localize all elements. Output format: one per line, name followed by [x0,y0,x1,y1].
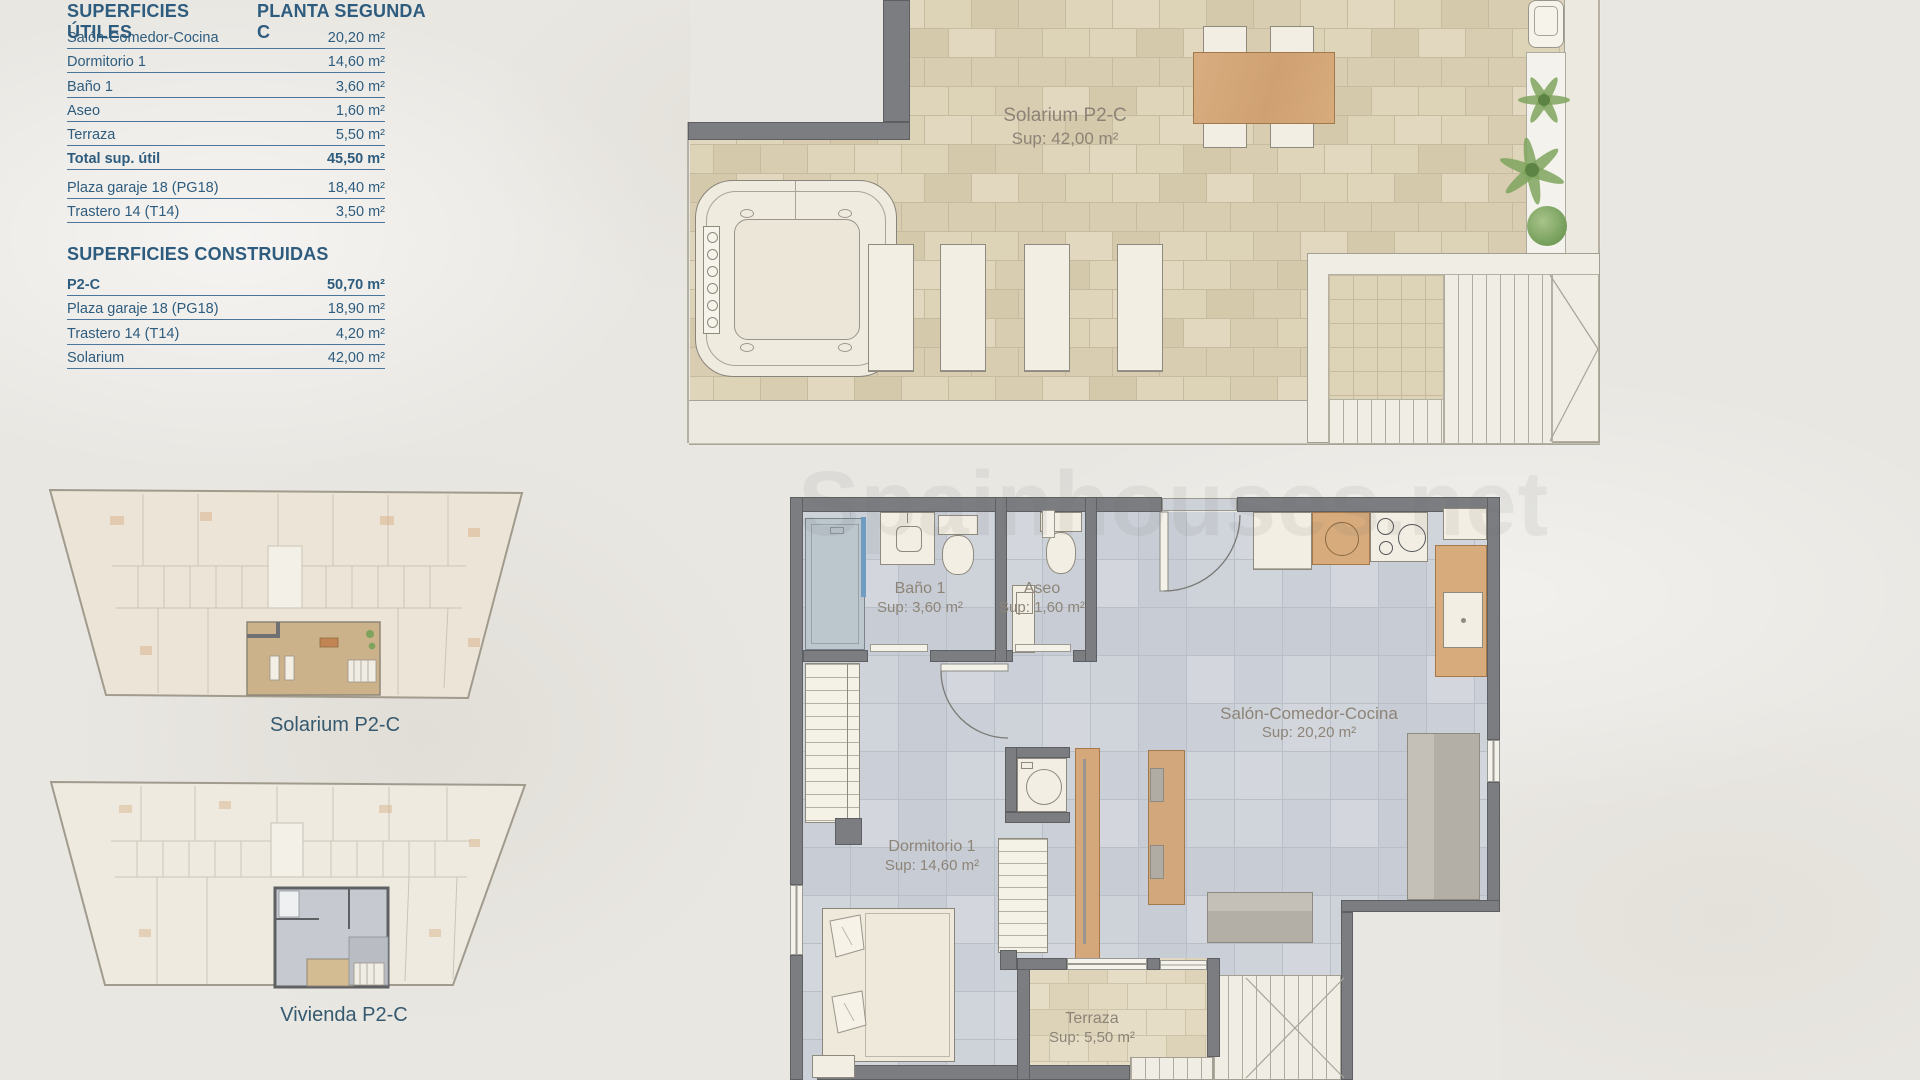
annex-table: Plaza garaje 18 (PG18) 18,40 m² Trastero… [67,175,385,223]
row-label: Plaza garaje 18 (PG18) [67,301,219,317]
row-label: Baño 1 [67,79,113,95]
row-value: 42,00 m² [328,350,385,366]
table-row: Solarium 42,00 m² [67,345,385,369]
row-value: 50,70 m² [327,277,385,293]
row-label: Terraza [67,127,115,143]
row-value: 5,50 m² [336,127,385,143]
key-plan-solarium [48,488,526,703]
table-row: Dormitorio 1 14,60 m² [67,49,385,73]
row-value: 3,50 m² [336,204,385,220]
construidas-table: P2-C 50,70 m² Plaza garaje 18 (PG18) 18,… [67,272,385,369]
row-label: Trastero 14 (T14) [67,326,179,342]
table-row: Aseo 1,60 m² [67,98,385,122]
solarium-linework [650,0,1600,443]
row-value: 20,20 m² [328,30,385,46]
row-label: Aseo [67,103,100,119]
floorplan-page: SUPERFICIES ÚTILES PLANTA SEGUNDA C Saló… [0,0,1920,1080]
room-area: Sup: 42,00 m² [1003,128,1127,149]
table-row: Trastero 14 (T14) 3,50 m² [67,199,385,223]
row-label: Trastero 14 (T14) [67,204,179,220]
room-label-banho: Baño 1 Sup: 3,60 m² [877,579,963,618]
table-row: Trastero 14 (T14) 4,20 m² [67,320,385,344]
table-row: Baño 1 3,60 m² [67,73,385,97]
room-name: Dormitorio 1 [885,837,979,857]
room-area: Sup: 14,60 m² [885,857,979,876]
key-plan-vivienda-label: Vivienda P2-C [49,1004,583,1027]
room-label-salon: Salón-Comedor-Cocina Sup: 20,20 m² [1220,703,1398,743]
row-label: Salón-Comedor-Cocina [67,30,219,46]
table-row: P2-C 50,70 m² [67,272,385,296]
row-value: 4,20 m² [336,326,385,342]
solarium-plan: Solarium P2-C Sup: 42,00 m² [650,0,1600,443]
room-area: Sup: 5,50 m² [1049,1029,1135,1048]
row-value: 18,90 m² [328,301,385,317]
construidas-title: SUPERFICIES CONSTRUIDAS [67,244,329,265]
table-row: Salón-Comedor-Cocina 20,20 m² [67,25,385,49]
row-value: 14,60 m² [328,54,385,70]
room-name: Aseo [999,579,1085,599]
room-name: Salón-Comedor-Cocina [1220,703,1398,724]
row-value: 18,40 m² [328,180,385,196]
key-plan-vivienda [49,779,527,989]
room-label-aseo: Aseo Sup: 1,60 m² [999,579,1085,618]
row-value: 1,60 m² [336,103,385,119]
room-name: Baño 1 [877,579,963,599]
table-row: Terraza 5,50 m² [67,122,385,146]
solarium-room-label: Solarium P2-C Sup: 42,00 m² [1003,104,1127,149]
table-row: Plaza garaje 18 (PG18) 18,40 m² [67,175,385,199]
row-value: 45,50 m² [327,151,385,167]
room-area: Sup: 20,20 m² [1220,724,1398,743]
room-label-dormitorio: Dormitorio 1 Sup: 14,60 m² [885,837,979,876]
key-plan-solarium-label: Solarium P2-C [48,714,574,737]
row-label: Solarium [67,350,124,366]
row-label: P2-C [67,277,100,293]
room-area: Sup: 1,60 m² [999,599,1085,618]
room-name: Terraza [1049,1009,1135,1029]
room-label-terraza: Terraza Sup: 5,50 m² [1049,1009,1135,1048]
table-row: Plaza garaje 18 (PG18) 18,90 m² [67,296,385,320]
table-total-row: Total sup. útil 45,50 m² [67,146,385,170]
row-value: 3,60 m² [336,79,385,95]
row-label: Dormitorio 1 [67,54,146,70]
vivienda-plan: Baño 1 Sup: 3,60 m² Aseo Sup: 1,60 m² Sa… [790,497,1500,1080]
row-label: Total sup. útil [67,151,160,167]
utiles-table: Salón-Comedor-Cocina 20,20 m² Dormitorio… [67,25,385,170]
row-label: Plaza garaje 18 (PG18) [67,180,219,196]
room-name: Solarium P2-C [1003,104,1127,128]
room-area: Sup: 3,60 m² [877,599,963,618]
